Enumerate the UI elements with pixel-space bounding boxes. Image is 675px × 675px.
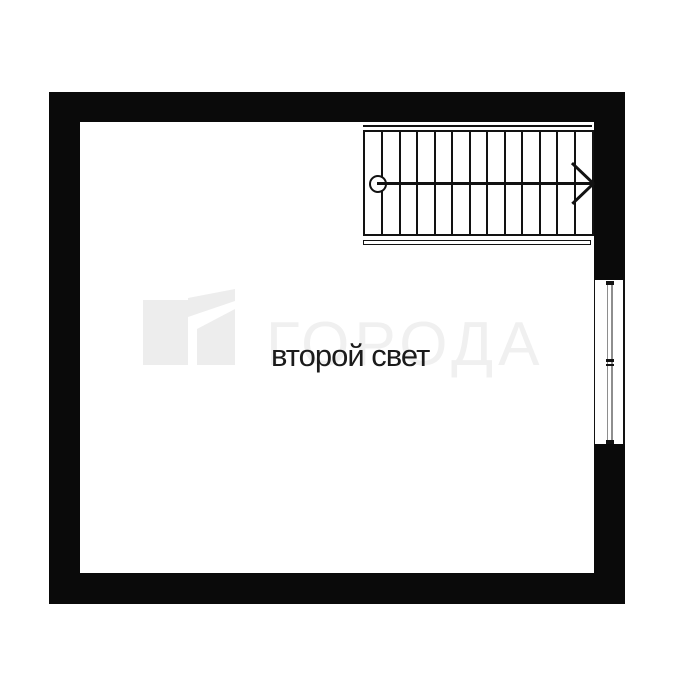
logo-square xyxy=(143,300,188,365)
logo-door-panel xyxy=(197,309,235,365)
wall-left xyxy=(49,122,80,604)
stairwell-edge-top xyxy=(363,125,592,127)
window-tick-bottom xyxy=(606,440,615,444)
watermark-logo xyxy=(143,287,237,366)
stair-direction-arrow xyxy=(377,182,593,184)
window-glazing-line xyxy=(611,281,613,444)
wall-bottom xyxy=(49,573,625,604)
window-glazing-line xyxy=(607,281,609,444)
room-label: второй свет xyxy=(271,340,429,371)
wall-right-lower xyxy=(594,444,625,573)
window-frame-inner xyxy=(594,280,596,444)
stairwell-edge-bottom xyxy=(363,240,591,246)
wall-top xyxy=(49,92,625,122)
window-tick-middle xyxy=(606,364,615,367)
wall-right-upper xyxy=(594,122,625,280)
window-frame-outer xyxy=(623,280,625,444)
window-tick-top xyxy=(606,281,615,285)
floor-plan-canvas: ГОРОДА второй свет xyxy=(0,0,675,675)
window-tick-middle xyxy=(606,359,615,362)
